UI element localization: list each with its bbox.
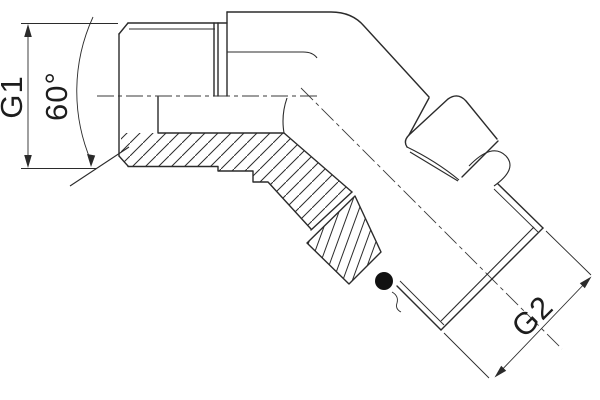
nut-back-face	[462, 141, 498, 177]
thread-upper-edge	[498, 184, 543, 228]
g1-arrow-up	[24, 24, 32, 37]
angle-arc	[77, 17, 93, 161]
body-outer-top-edge	[227, 12, 429, 97]
thread-lower-edge	[397, 286, 441, 330]
body-section-hatch	[121, 133, 352, 230]
bore-lines	[158, 97, 284, 133]
angle-arrow	[87, 154, 95, 167]
dimension-angle: 60°	[39, 17, 129, 186]
angle-leg-line	[70, 147, 129, 186]
body-hex-face-line	[227, 52, 317, 58]
technical-drawing-canvas: G1 60° G2	[0, 0, 600, 400]
bend-inner-curve	[283, 98, 287, 133]
washer-squiggle	[392, 292, 401, 312]
nut-chamfer-crescent-a	[407, 147, 459, 180]
centerlines	[97, 88, 562, 349]
elbow-fitting-drawing: G1 60° G2	[0, 0, 600, 400]
thread-upper-root-line	[494, 189, 538, 232]
fitting-body	[119, 12, 429, 230]
o-ring-seal	[375, 272, 393, 290]
angle-label: 60°	[39, 71, 74, 121]
nut-chamfer-crescent-b	[410, 152, 458, 181]
nut-facet-edge	[409, 98, 429, 135]
body-step-edges	[214, 12, 227, 96]
washer-tab	[469, 151, 510, 186]
g1-arrow-down	[24, 155, 32, 168]
g1-label: G1	[0, 75, 29, 118]
g2-label: G2	[505, 289, 560, 344]
thread-lower-root-line	[400, 281, 444, 325]
nut-silhouette	[405, 96, 497, 147]
